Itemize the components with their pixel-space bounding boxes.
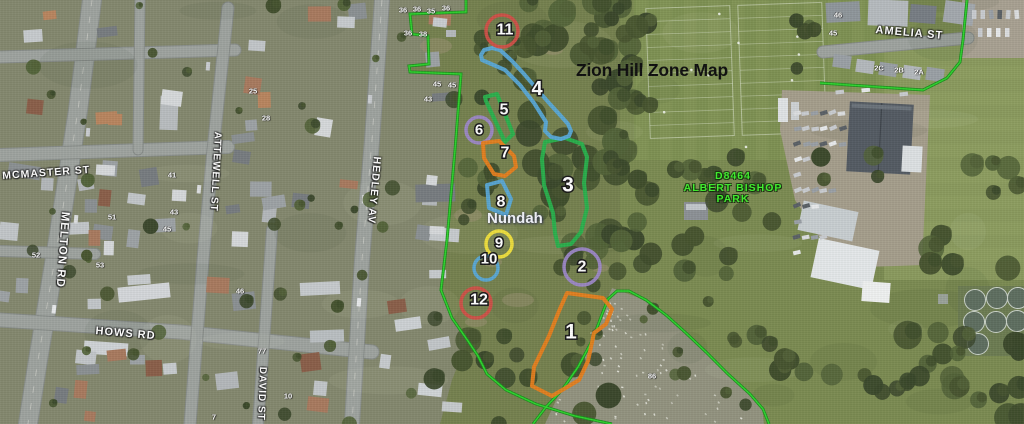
- zone-12[interactable]: 12: [461, 288, 491, 318]
- zone-number: 5: [500, 102, 509, 119]
- zone-7[interactable]: 7: [483, 141, 516, 176]
- house-number: 45: [448, 81, 456, 89]
- house-number: 7: [212, 413, 216, 421]
- zone-number: 4: [531, 78, 543, 100]
- house-number: 2A: [914, 68, 924, 76]
- house-number: 36: [404, 29, 412, 37]
- map-title: Zion Hill Zone Map: [576, 62, 728, 80]
- house-number: 46: [834, 11, 842, 19]
- house-number: 25: [249, 87, 257, 95]
- house-number: 77: [258, 347, 266, 355]
- zone-number: 3: [562, 174, 574, 197]
- zone-number: 8: [497, 194, 506, 211]
- house-number: 2B: [894, 66, 904, 74]
- suburb-label: Nundah: [487, 211, 543, 226]
- zone-number: 11: [497, 22, 514, 39]
- house-number: 28: [262, 114, 270, 122]
- zone-10[interactable]: 10: [474, 251, 498, 281]
- street-label-david: DAVID ST: [255, 367, 267, 421]
- house-number: 43: [170, 208, 178, 216]
- house-number: 36: [399, 6, 407, 14]
- house-number: 41: [168, 171, 176, 179]
- house-number: 86: [648, 372, 656, 380]
- house-number: 51: [108, 213, 116, 221]
- zone-6[interactable]: 6: [466, 117, 492, 143]
- zone-number: 10: [481, 251, 498, 268]
- zone-number: 2: [578, 259, 587, 276]
- house-number: 45: [433, 80, 441, 88]
- house-number: 36: [413, 5, 421, 13]
- house-number: 36: [442, 4, 450, 12]
- house-number: 45: [163, 225, 171, 233]
- zone-11[interactable]: 11: [486, 15, 518, 47]
- park-label-line: D8464: [653, 171, 813, 183]
- house-number: 45: [829, 29, 837, 37]
- house-number: 2C: [874, 64, 884, 72]
- zone-number: 7: [501, 145, 510, 162]
- zion-hill-zone-map[interactable]: 123456789101112 Zion Hill Zone Map D8464…: [0, 0, 1024, 424]
- park-label: D8464 ALBERT BISHOP PARK: [653, 171, 813, 206]
- park-label-line: PARK: [653, 194, 813, 206]
- house-number: 43: [424, 95, 432, 103]
- zone-number: 12: [470, 292, 488, 309]
- zone-2[interactable]: 2: [564, 249, 600, 285]
- house-number: 52: [32, 251, 40, 259]
- zone-number: 6: [475, 122, 483, 139]
- zone-3[interactable]: 3: [542, 138, 587, 246]
- house-number: 35: [427, 7, 435, 15]
- zone-1[interactable]: 1: [532, 293, 612, 396]
- house-number: 53: [96, 261, 104, 269]
- zone-number: 9: [495, 235, 503, 252]
- house-number: 46: [236, 287, 244, 295]
- house-number: 10: [284, 392, 292, 400]
- house-number: 38: [419, 30, 427, 38]
- zone-number: 1: [565, 321, 577, 344]
